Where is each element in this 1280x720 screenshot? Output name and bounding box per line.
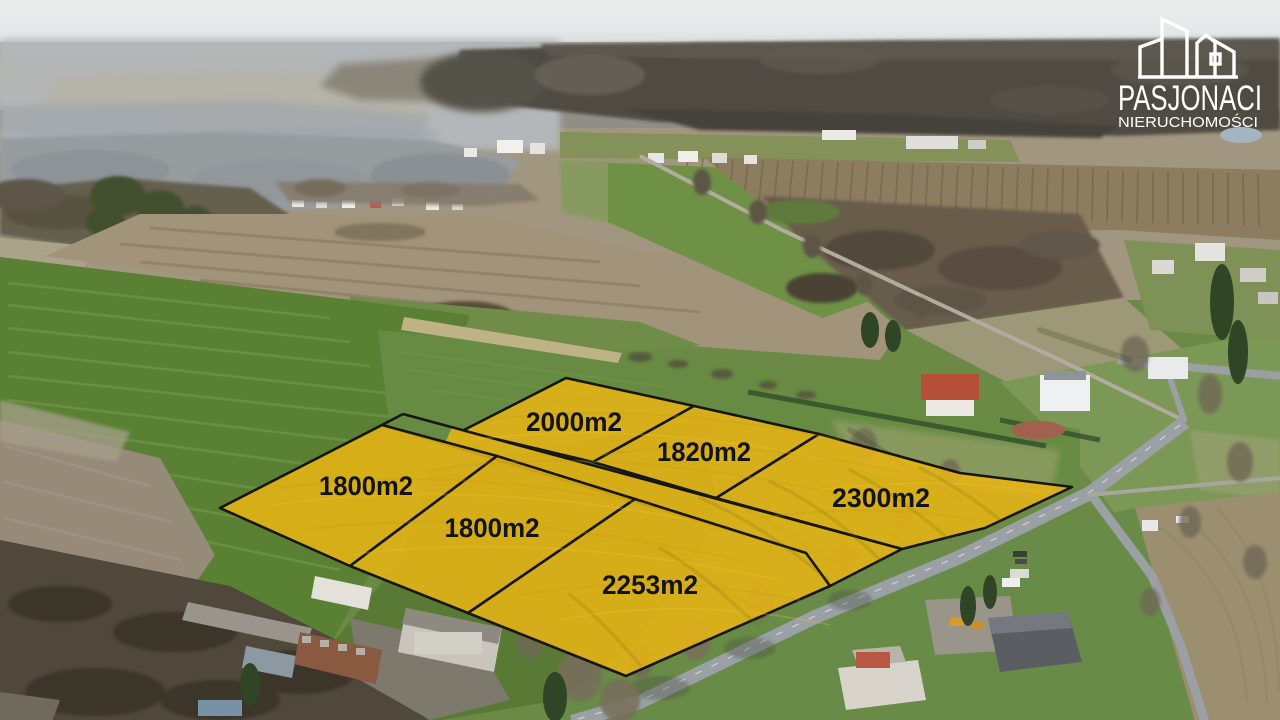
svg-text:2253m2: 2253m2 — [602, 570, 698, 600]
svg-text:PASJONACI: PASJONACI — [1118, 79, 1262, 118]
svg-text:2300m2: 2300m2 — [832, 483, 930, 513]
svg-text:1800m2: 1800m2 — [445, 513, 540, 543]
svg-text:NIERUCHOMOŚCI: NIERUCHOMOŚCI — [1118, 113, 1258, 131]
svg-text:2000m2: 2000m2 — [526, 407, 622, 437]
svg-text:1800m2: 1800m2 — [319, 471, 413, 501]
svg-text:1820m2: 1820m2 — [657, 437, 751, 467]
